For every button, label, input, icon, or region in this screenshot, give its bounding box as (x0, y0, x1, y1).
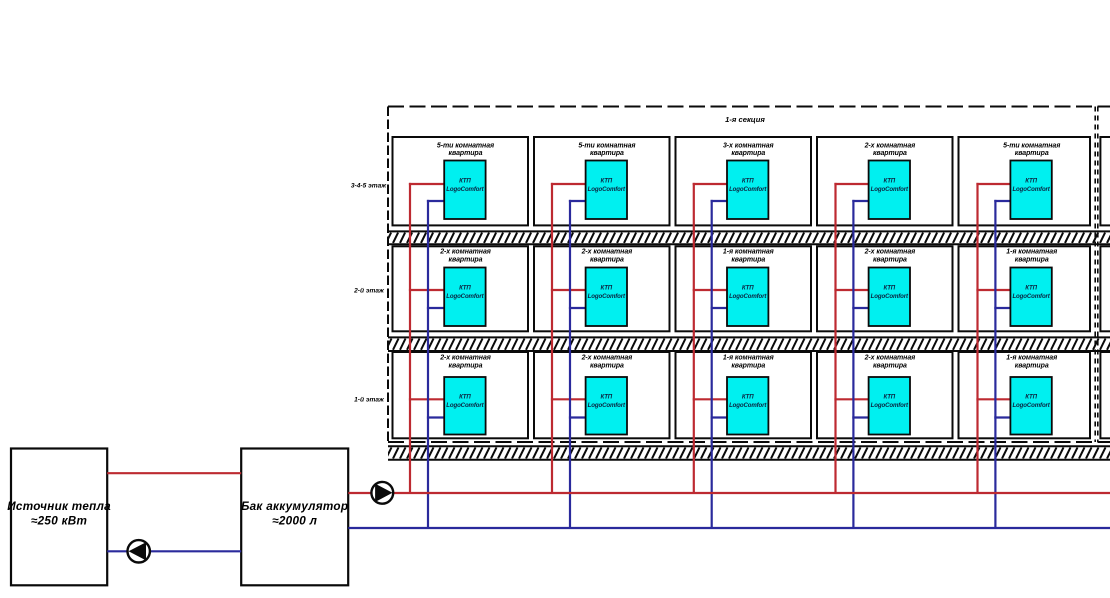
svg-text:LogoComfort: LogoComfort (729, 293, 767, 300)
svg-text:LogoComfort: LogoComfort (446, 402, 484, 409)
svg-text:квартира: квартира (590, 150, 624, 157)
svg-text:≈2000 л: ≈2000 л (272, 515, 317, 528)
svg-text:LogoComfort: LogoComfort (729, 402, 767, 409)
svg-text:квартира: квартира (449, 150, 483, 157)
svg-text:LogoComfort: LogoComfort (588, 293, 626, 300)
svg-text:КТП: КТП (601, 394, 613, 401)
svg-text:5-ти комнатная: 5-ти комнатная (1003, 142, 1060, 149)
svg-text:КТП: КТП (742, 394, 754, 401)
svg-text:квартира: квартира (731, 150, 765, 157)
svg-text:5-ти комнатная: 5-ти комнатная (437, 142, 494, 149)
svg-text:квартира: квартира (731, 362, 765, 369)
svg-text:квартира: квартира (731, 257, 765, 264)
svg-text:LogoComfort: LogoComfort (446, 293, 484, 300)
svg-text:LogoComfort: LogoComfort (1012, 402, 1050, 409)
svg-text:LogoComfort: LogoComfort (871, 402, 909, 409)
svg-text:1-я секция: 1-я секция (725, 115, 765, 124)
svg-text:квартира: квартира (1015, 150, 1049, 157)
svg-text:квартира: квартира (1015, 362, 1049, 369)
svg-text:Бак аккумулятор: Бак аккумулятор (241, 500, 348, 513)
svg-text:LogoComfort: LogoComfort (588, 402, 626, 409)
svg-text:Источник тепла: Источник тепла (7, 500, 111, 513)
svg-text:1-я комнатная: 1-я комнатная (723, 249, 774, 256)
svg-text:КТП: КТП (459, 178, 471, 185)
svg-text:КТП: КТП (1025, 285, 1037, 292)
svg-text:3-4-5 этаж: 3-4-5 этаж (351, 183, 387, 190)
svg-text:LogoComfort: LogoComfort (729, 186, 767, 193)
svg-text:2-х комнатная: 2-х комнатная (864, 355, 916, 362)
svg-text:КТП: КТП (884, 285, 896, 292)
svg-text:квартира: квартира (873, 257, 907, 264)
svg-text:2-х комнатная: 2-х комнатная (864, 249, 916, 256)
svg-text:LogoComfort: LogoComfort (871, 293, 909, 300)
svg-text:LogoComfort: LogoComfort (588, 186, 626, 193)
svg-text:≈250 кВт: ≈250 кВт (31, 515, 87, 528)
svg-text:1-я комнатная: 1-я комнатная (723, 355, 774, 362)
svg-text:квартира: квартира (590, 257, 624, 264)
svg-text:КТП: КТП (601, 285, 613, 292)
svg-text:1-й этаж: 1-й этаж (354, 396, 385, 404)
svg-text:КТП: КТП (884, 394, 896, 401)
svg-text:2-й этаж: 2-й этаж (353, 287, 385, 295)
svg-text:2-х комнатная: 2-х комнатная (581, 249, 633, 256)
svg-text:LogoComfort: LogoComfort (1012, 293, 1050, 300)
svg-text:2-х комнатная: 2-х комнатная (864, 142, 916, 149)
svg-text:КТП: КТП (601, 178, 613, 185)
svg-text:1-я комнатная: 1-я комнатная (1006, 355, 1057, 362)
svg-text:2-х комнатная: 2-х комнатная (439, 249, 491, 256)
svg-text:КТП: КТП (742, 178, 754, 185)
svg-text:LogoComfort: LogoComfort (1012, 186, 1050, 193)
svg-text:1-я комнатная: 1-я комнатная (1006, 249, 1057, 256)
svg-text:квартира: квартира (873, 362, 907, 369)
svg-text:5-ти комнатная: 5-ти комнатная (578, 142, 635, 149)
svg-text:LogoComfort: LogoComfort (446, 186, 484, 193)
svg-text:квартира: квартира (873, 150, 907, 157)
svg-text:КТП: КТП (459, 394, 471, 401)
svg-text:квартира: квартира (449, 257, 483, 264)
svg-text:квартира: квартира (590, 362, 624, 369)
svg-text:2-х комнатная: 2-х комнатная (581, 355, 633, 362)
svg-text:КТП: КТП (884, 178, 896, 185)
svg-text:квартира: квартира (449, 362, 483, 369)
svg-text:КТП: КТП (459, 285, 471, 292)
svg-text:КТП: КТП (1025, 394, 1037, 401)
svg-text:КТП: КТП (1025, 178, 1037, 185)
svg-text:квартира: квартира (1015, 257, 1049, 264)
svg-text:2-х комнатная: 2-х комнатная (439, 355, 491, 362)
svg-text:3-х комнатная: 3-х комнатная (723, 142, 774, 149)
svg-text:КТП: КТП (742, 285, 754, 292)
svg-text:LogoComfort: LogoComfort (871, 186, 909, 193)
